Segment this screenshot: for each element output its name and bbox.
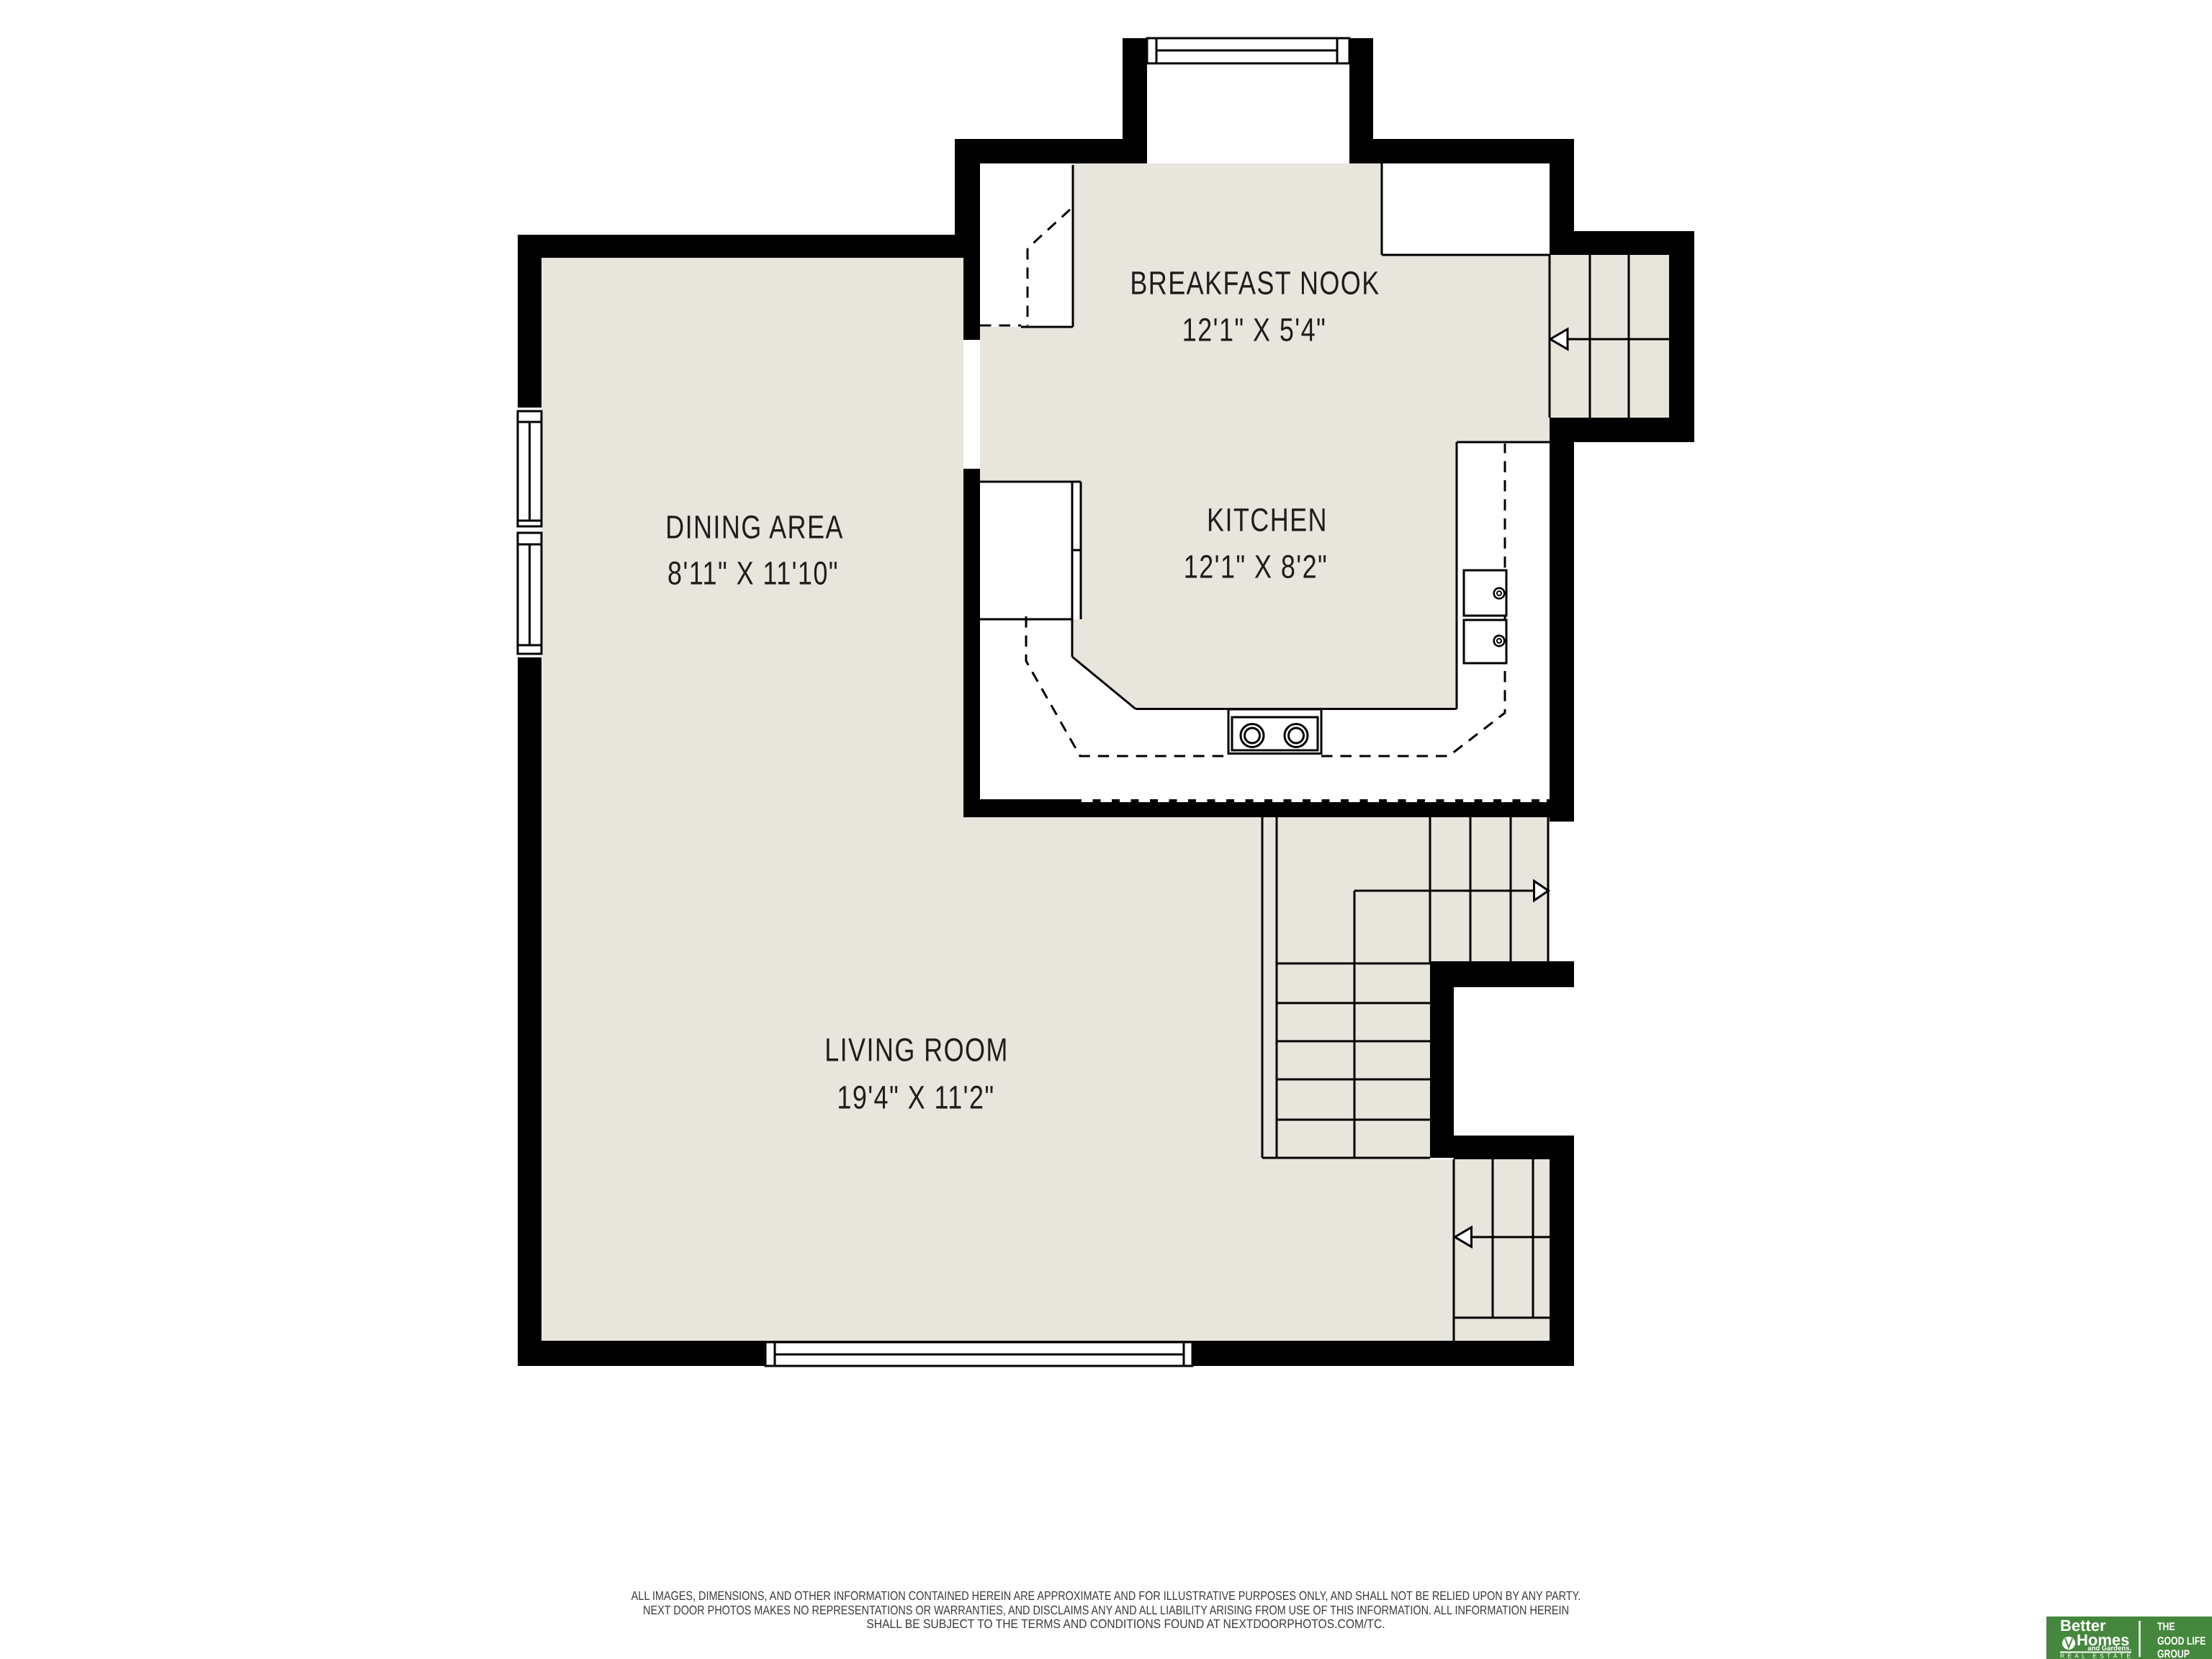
svg-text:12'1" X 5'4": 12'1" X 5'4" bbox=[1182, 312, 1326, 349]
svg-text:REAL ESTATE: REAL ESTATE bbox=[2060, 1653, 2134, 1659]
svg-text:ALL IMAGES, DIMENSIONS, AND OT: ALL IMAGES, DIMENSIONS, AND OTHER INFORM… bbox=[631, 1588, 1581, 1603]
svg-text:GROUP: GROUP bbox=[2157, 1648, 2190, 1659]
svg-text:BREAKFAST NOOK: BREAKFAST NOOK bbox=[1130, 265, 1380, 302]
svg-text:12'1" X 8'2": 12'1" X 8'2" bbox=[1184, 549, 1328, 585]
svg-text:SHALL BE SUBJECT TO THE TERMS: SHALL BE SUBJECT TO THE TERMS AND CONDIT… bbox=[866, 1617, 1385, 1631]
svg-text:and Gardens.: and Gardens. bbox=[2087, 1645, 2131, 1653]
svg-text:LIVING ROOM: LIVING ROOM bbox=[824, 1032, 1009, 1069]
svg-text:GOOD LIFE: GOOD LIFE bbox=[2157, 1635, 2206, 1647]
svg-text:8'11" X 11'10": 8'11" X 11'10" bbox=[667, 555, 839, 592]
svg-text:KITCHEN: KITCHEN bbox=[1207, 502, 1328, 539]
svg-text:DINING AREA: DINING AREA bbox=[665, 509, 844, 546]
svg-text:THE: THE bbox=[2157, 1621, 2175, 1633]
svg-text:NEXT DOOR PHOTOS MAKES NO REPR: NEXT DOOR PHOTOS MAKES NO REPRESENTATION… bbox=[643, 1603, 1569, 1617]
svg-text:19'4" X 11'2": 19'4" X 11'2" bbox=[837, 1079, 994, 1116]
